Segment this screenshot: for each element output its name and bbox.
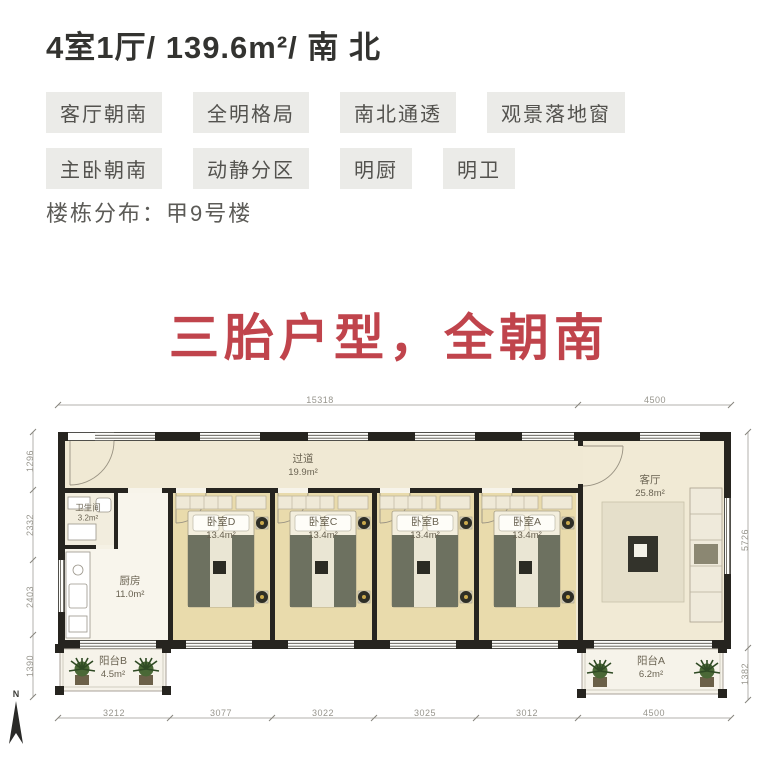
dim-bottom-2: 3077	[210, 708, 232, 718]
room-label-bedroom-a: 卧室A 13.4m²	[512, 516, 542, 542]
dim-right-2: 1382	[740, 663, 750, 685]
room-label-bedroom-c: 卧室C 13.4m²	[308, 516, 338, 542]
dim-left-4: 1390	[25, 655, 35, 677]
dim-left-1: 1296	[25, 450, 35, 472]
bed-bedroom-c	[278, 496, 370, 607]
room-label-living: 客厅 25.8m²	[635, 474, 665, 500]
bed-bedroom-a	[482, 496, 574, 607]
bed-bedroom-b	[380, 496, 472, 607]
room-label-balcony-b: 阳台B 4.5m²	[99, 655, 127, 681]
bed-bedroom-d	[176, 496, 268, 607]
page-title: 4室1厅/ 139.6m²/ 南 北	[46, 22, 381, 67]
north-label: N	[13, 689, 20, 699]
feature-tags-row2: 主卧朝南动静分区明厨明卫	[46, 148, 546, 189]
tag-bright-kitchen: 明厨	[340, 148, 412, 189]
building-distribution: 楼栋分布：甲9号楼	[46, 196, 252, 228]
room-label-balcony-a: 阳台A 6.2m²	[637, 655, 665, 681]
tag-view-floor-window: 观景落地窗	[487, 92, 625, 133]
room-label-bedroom-d: 卧室D 13.4m²	[206, 516, 236, 542]
dim-right-1: 5726	[740, 529, 750, 551]
dim-bottom-1: 3212	[103, 708, 125, 718]
tag-bright-bathroom: 明卫	[443, 148, 515, 189]
living-room-furniture	[602, 488, 722, 622]
dim-bottom-5: 3012	[516, 708, 538, 718]
dim-top-right: 4500	[644, 395, 666, 405]
dim-left-2: 2332	[25, 514, 35, 536]
listing-page: 4室1厅/ 139.6m²/ 南 北 客厅朝南全明格局南北通透观景落地窗 主卧朝…	[0, 0, 778, 764]
dim-bottom-4: 3025	[414, 708, 436, 718]
dim-left-3: 2403	[25, 586, 35, 608]
dim-bottom-3: 3022	[312, 708, 334, 718]
north-arrow-icon	[9, 701, 23, 744]
tag-north-south-through: 南北通透	[340, 92, 456, 133]
dim-bottom-6: 4500	[643, 708, 665, 718]
tag-dynamic-static-zones: 动静分区	[193, 148, 309, 189]
dim-top-main: 15318	[306, 395, 334, 405]
room-label-kitchen: 厨房 11.0m²	[116, 575, 145, 601]
slogan-banner: 三胎户型，全朝南	[0, 298, 778, 370]
room-label-corridor: 过道 19.9m²	[288, 453, 318, 479]
tag-all-bright-layout: 全明格局	[193, 92, 309, 133]
tag-living-room-south: 客厅朝南	[46, 92, 162, 133]
room-label-bathroom: 卫生间 3.2m²	[75, 502, 101, 523]
tag-master-bedroom-south: 主卧朝南	[46, 148, 162, 189]
room-label-bedroom-b: 卧室B 13.4m²	[410, 516, 440, 542]
kitchen-fixtures	[66, 552, 90, 638]
feature-tags-row1: 客厅朝南全明格局南北通透观景落地窗	[46, 92, 656, 133]
